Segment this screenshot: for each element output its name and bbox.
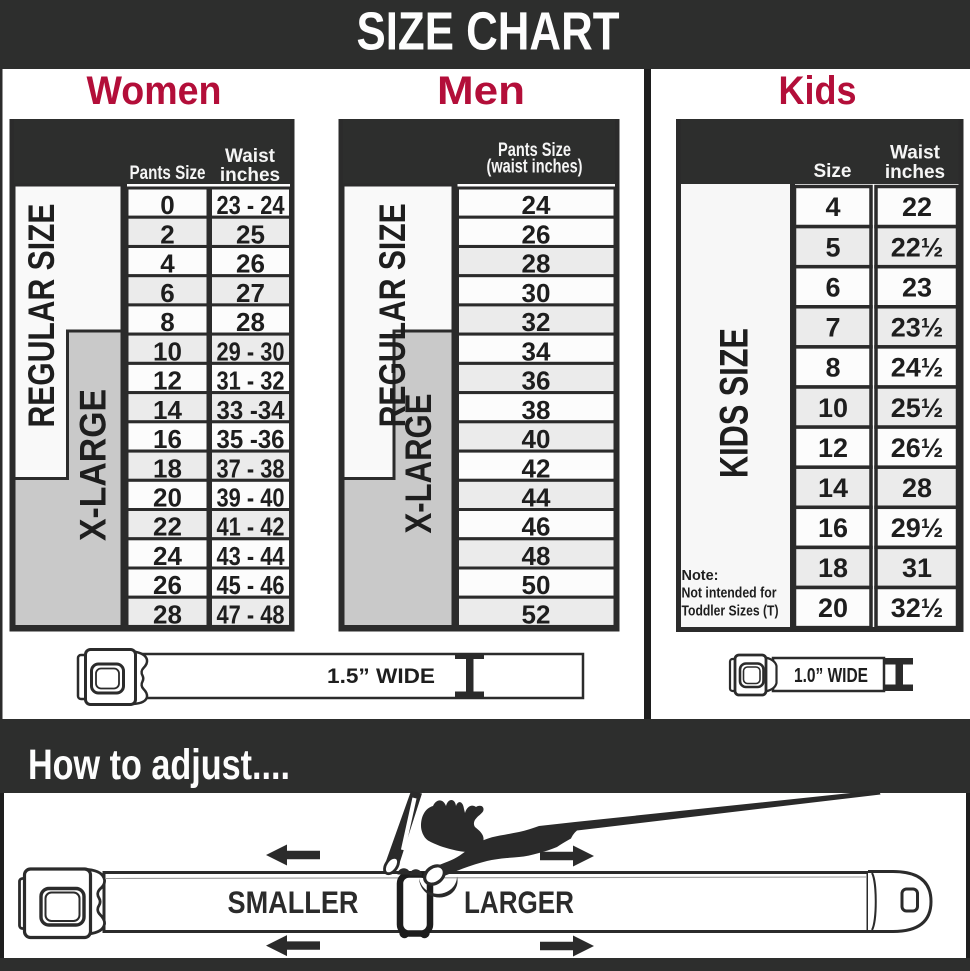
svg-text:52: 52 xyxy=(522,599,551,629)
svg-text:Not intended for: Not intended for xyxy=(682,585,777,602)
svg-text:35 -36: 35 -36 xyxy=(217,424,285,454)
svg-text:1.5” WIDE: 1.5” WIDE xyxy=(327,665,435,688)
svg-text:22½: 22½ xyxy=(891,232,944,262)
svg-text:SMALLER: SMALLER xyxy=(228,884,359,920)
svg-text:22: 22 xyxy=(902,192,932,222)
svg-text:6: 6 xyxy=(825,272,840,302)
svg-text:Men: Men xyxy=(437,69,525,113)
svg-text:12: 12 xyxy=(818,433,848,463)
svg-text:24½: 24½ xyxy=(891,353,944,383)
svg-text:Waist: Waist xyxy=(890,143,941,164)
svg-text:Size: Size xyxy=(813,161,851,182)
svg-text:26: 26 xyxy=(522,219,551,249)
svg-text:Women: Women xyxy=(87,69,222,113)
svg-text:inches: inches xyxy=(885,162,945,183)
svg-text:X-LARGE: X-LARGE xyxy=(398,394,439,534)
svg-text:47 - 48: 47 - 48 xyxy=(217,599,285,629)
svg-text:X-LARGE: X-LARGE xyxy=(73,389,114,541)
svg-text:25: 25 xyxy=(236,219,265,249)
svg-text:23½: 23½ xyxy=(891,313,944,343)
svg-text:10: 10 xyxy=(818,393,848,423)
svg-text:20: 20 xyxy=(818,593,848,623)
svg-text:25½: 25½ xyxy=(891,393,944,423)
svg-text:16: 16 xyxy=(153,424,182,454)
svg-text:29½: 29½ xyxy=(891,513,944,543)
svg-text:28: 28 xyxy=(902,473,932,503)
svg-text:8: 8 xyxy=(825,353,840,383)
svg-text:REGULAR SIZE: REGULAR SIZE xyxy=(20,204,62,428)
svg-text:10: 10 xyxy=(153,336,182,366)
svg-text:32½: 32½ xyxy=(891,593,944,623)
svg-text:Toddler Sizes (T): Toddler Sizes (T) xyxy=(682,602,779,619)
svg-text:Kids: Kids xyxy=(779,69,857,113)
svg-text:28: 28 xyxy=(153,599,182,629)
svg-text:41 - 42: 41 - 42 xyxy=(217,512,285,542)
svg-text:1.0” WIDE: 1.0” WIDE xyxy=(794,665,868,687)
svg-text:31: 31 xyxy=(902,553,932,583)
svg-text:inches: inches xyxy=(220,165,280,186)
svg-text:14: 14 xyxy=(818,473,848,503)
svg-text:23: 23 xyxy=(902,272,932,302)
svg-text:Waist: Waist xyxy=(225,146,276,167)
svg-text:34: 34 xyxy=(522,336,551,366)
svg-text:24: 24 xyxy=(522,190,551,220)
svg-text:(waist inches): (waist inches) xyxy=(487,157,583,178)
svg-text:40: 40 xyxy=(522,424,551,454)
svg-text:7: 7 xyxy=(825,313,840,343)
svg-text:Pants Size: Pants Size xyxy=(130,163,206,184)
svg-text:2: 2 xyxy=(160,219,174,249)
svg-text:5: 5 xyxy=(825,232,840,262)
svg-text:16: 16 xyxy=(818,513,848,543)
svg-text:29 - 30: 29 - 30 xyxy=(217,336,285,366)
svg-text:23 - 24: 23 - 24 xyxy=(217,190,285,220)
svg-text:KIDS SIZE: KIDS SIZE xyxy=(713,328,757,478)
svg-text:How to adjust....: How to adjust.... xyxy=(28,741,290,789)
svg-text:LARGER: LARGER xyxy=(464,884,574,920)
svg-text:46: 46 xyxy=(522,512,551,542)
svg-text:Note:: Note: xyxy=(682,567,719,584)
svg-text:18: 18 xyxy=(818,553,848,583)
svg-text:4: 4 xyxy=(825,192,840,222)
svg-text:22: 22 xyxy=(153,512,182,542)
svg-text:0: 0 xyxy=(160,190,174,220)
svg-text:26½: 26½ xyxy=(891,433,944,463)
svg-text:SIZE CHART: SIZE CHART xyxy=(357,2,620,62)
